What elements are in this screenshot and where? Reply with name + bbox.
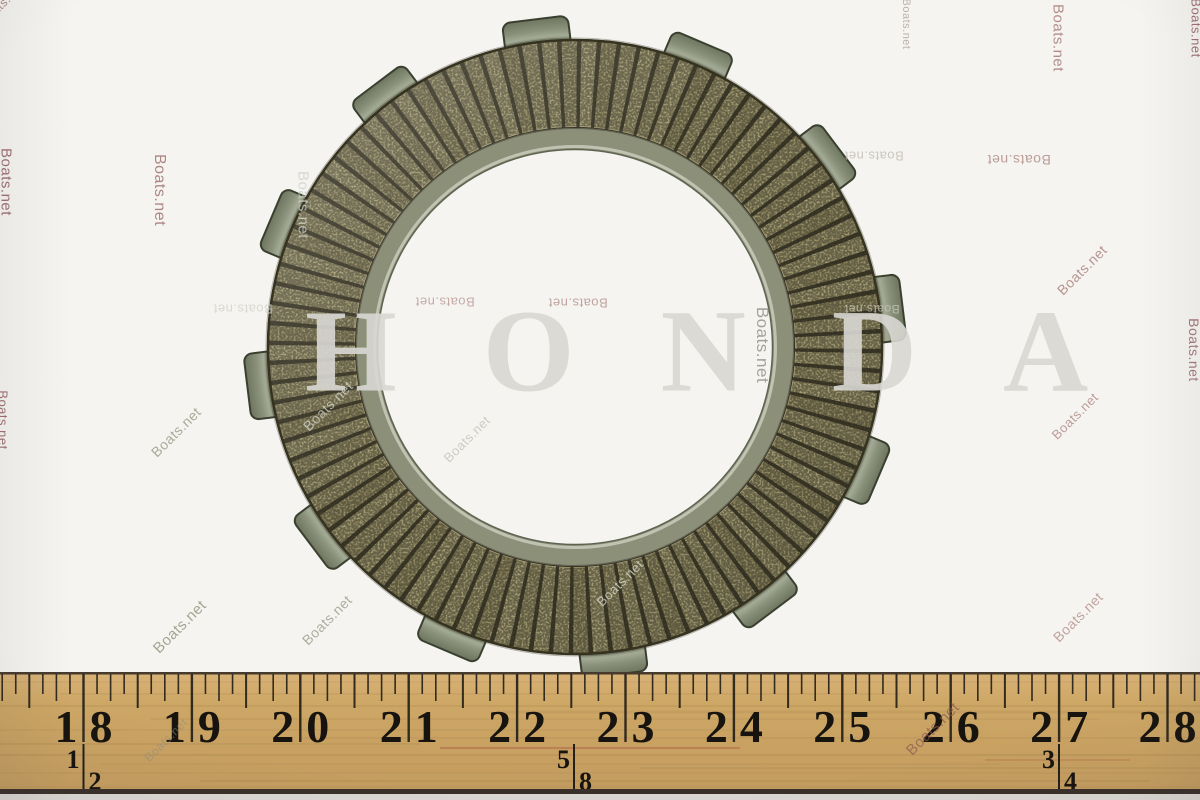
ruler-bottom-edge	[0, 789, 1200, 794]
ruler-inch-label: 2	[1139, 701, 1162, 752]
ruler-inch-label: 2	[488, 701, 511, 752]
fraction-numerator: 1	[67, 745, 80, 774]
ruler-inch-label: 3	[632, 701, 655, 752]
ruler-inch-label: 5	[848, 701, 871, 752]
plate-inner-rim	[367, 139, 784, 556]
fraction-numerator: 5	[557, 745, 570, 774]
ruler: 1819202122232425262728125834	[0, 672, 1200, 800]
inner-rim-edge	[378, 150, 773, 545]
ruler-inch-label: 2	[922, 701, 945, 752]
ruler-top-edge	[0, 672, 1200, 675]
ruler-inch-label: 6	[957, 701, 980, 752]
ruler-inch-label: 2	[597, 701, 620, 752]
ring-shading	[312, 84, 839, 611]
fraction-numerator: 3	[1042, 745, 1055, 774]
ruler-inch-label: 2	[813, 701, 836, 752]
surface-below-ruler	[0, 794, 1200, 800]
product-photo: 1819202122232425262728125834 HONDA Boats…	[0, 0, 1200, 800]
ruler-inch-label: 2	[705, 701, 728, 752]
ruler-inch-label: 8	[1174, 701, 1197, 752]
ruler-inch-label: 7	[1065, 701, 1088, 752]
ruler-inch-label: 0	[306, 701, 329, 752]
ruler-inch-label: 4	[740, 701, 763, 752]
ruler-inch-label: 1	[415, 701, 438, 752]
ruler-inch-label: 2	[523, 701, 546, 752]
ruler-inch-label: 2	[271, 701, 294, 752]
ruler-inch-label: 8	[90, 701, 113, 752]
ruler-inch-label: 2	[380, 701, 403, 752]
ruler-inch-label: 1	[163, 701, 186, 752]
ruler-inch-label: 9	[198, 701, 221, 752]
